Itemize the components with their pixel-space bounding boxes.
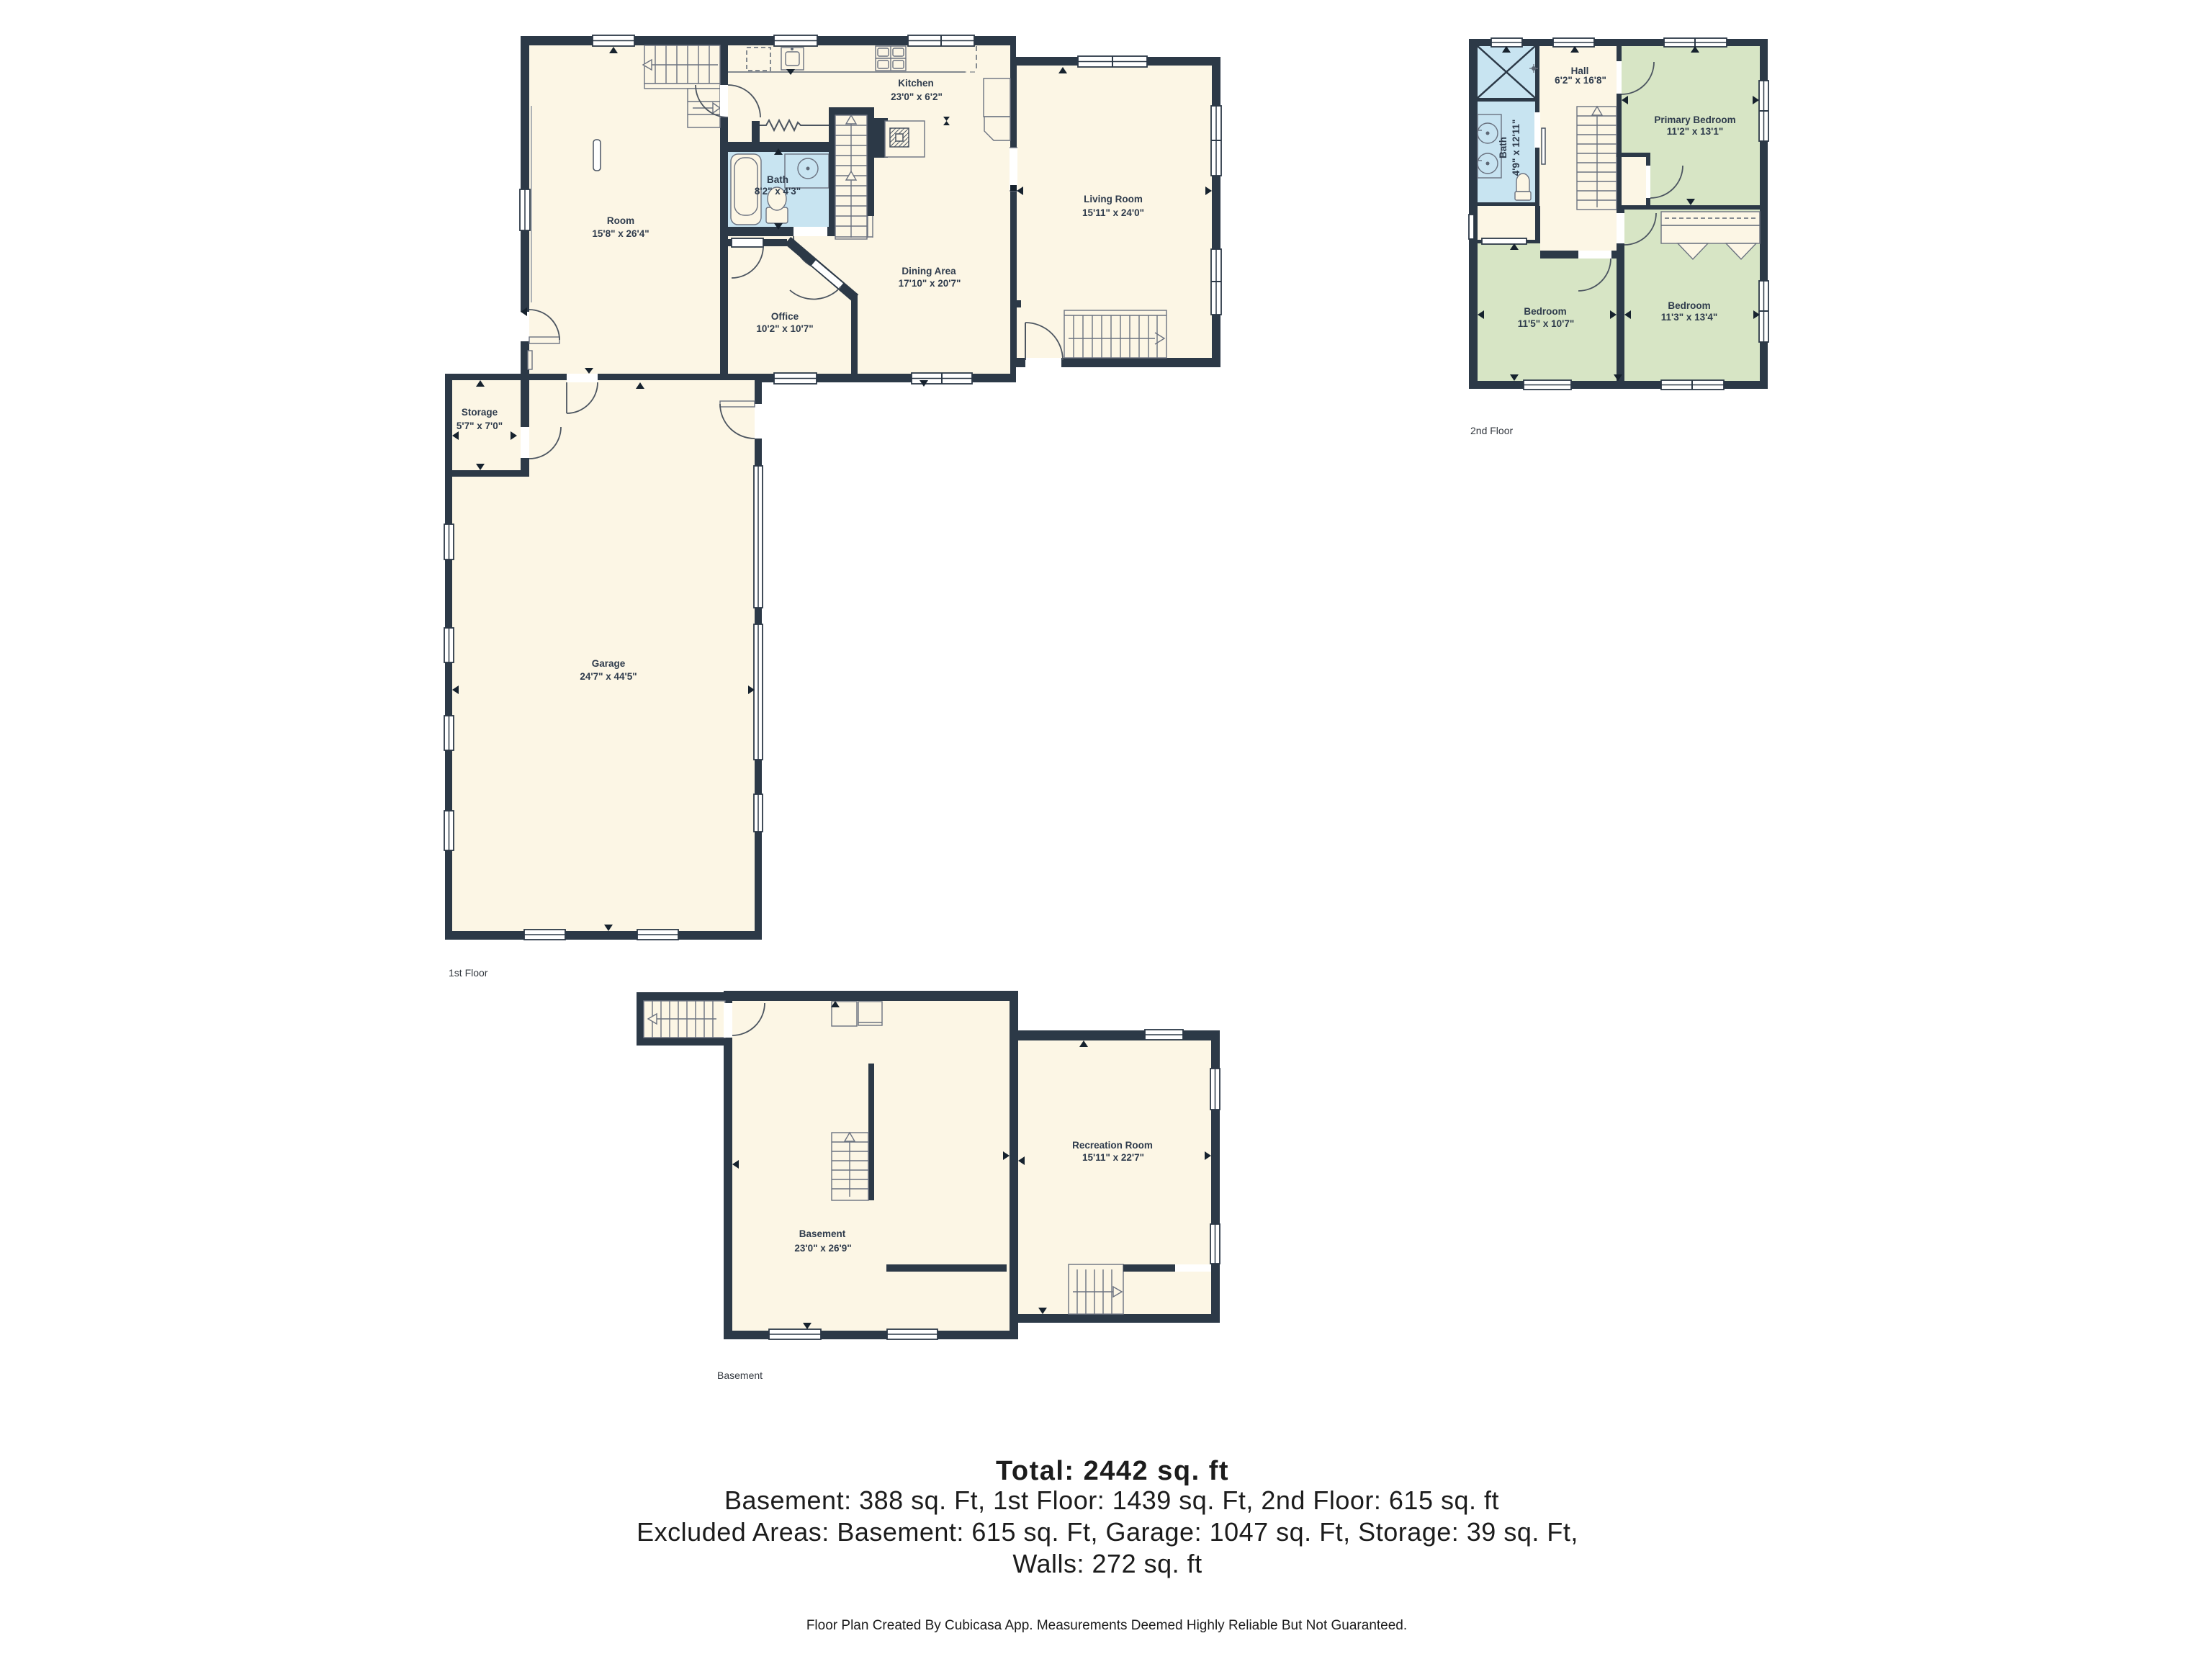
svg-text:Basement: Basement — [799, 1228, 846, 1239]
svg-text:11'2" x 13'1": 11'2" x 13'1" — [1667, 126, 1724, 137]
svg-text:Storage: Storage — [462, 407, 498, 418]
svg-text:Bedroom: Bedroom — [1524, 306, 1566, 317]
svg-text:11'3" x 13'4": 11'3" x 13'4" — [1661, 312, 1718, 323]
svg-text:Bath: Bath — [767, 174, 788, 185]
svg-text:Primary Bedroom: Primary Bedroom — [1654, 114, 1735, 125]
svg-text:23'0" x 26'9": 23'0" x 26'9" — [794, 1243, 851, 1254]
svg-text:Kitchen: Kitchen — [898, 78, 934, 89]
svg-text:24'7" x 44'5": 24'7" x 44'5" — [580, 671, 637, 682]
svg-text:15'11" x 22'7": 15'11" x 22'7" — [1082, 1152, 1144, 1163]
svg-text:23'0" x 6'2": 23'0" x 6'2" — [891, 91, 943, 102]
svg-text:15'11" x 24'0": 15'11" x 24'0" — [1082, 207, 1144, 218]
svg-text:Office: Office — [771, 311, 799, 322]
svg-text:Excluded Areas: Basement: 615: Excluded Areas: Basement: 615 sq. Ft, Ga… — [637, 1517, 1578, 1547]
svg-text:Walls: 272 sq. ft: Walls: 272 sq. ft — [1012, 1549, 1202, 1578]
svg-text:Garage: Garage — [592, 658, 626, 669]
svg-text:15'8" x 26'4": 15'8" x 26'4" — [592, 228, 649, 239]
svg-text:Bedroom: Bedroom — [1668, 300, 1710, 311]
svg-text:1st Floor: 1st Floor — [449, 967, 488, 979]
svg-text:Room: Room — [607, 215, 634, 226]
svg-text:Basement: Basement — [717, 1370, 763, 1381]
svg-text:2nd Floor: 2nd Floor — [1470, 425, 1513, 436]
svg-text:5'7" x 7'0": 5'7" x 7'0" — [457, 421, 503, 431]
svg-text:6'2" x 16'8": 6'2" x 16'8" — [1555, 75, 1606, 86]
svg-text:Recreation Room: Recreation Room — [1072, 1140, 1153, 1151]
svg-text:Total: 2442 sq. ft: Total: 2442 sq. ft — [996, 1456, 1229, 1486]
svg-text:11'5" x 10'7": 11'5" x 10'7" — [1518, 318, 1575, 329]
svg-text:Basement: 388 sq. Ft, 1st Floo: Basement: 388 sq. Ft, 1st Floor: 1439 sq… — [724, 1485, 1499, 1515]
svg-text:Floor Plan Created By Cubicasa: Floor Plan Created By Cubicasa App. Meas… — [806, 1618, 1407, 1633]
svg-text:17'10" x 20'7": 17'10" x 20'7" — [899, 278, 961, 289]
svg-text:Bath: Bath — [1498, 137, 1509, 158]
svg-text:4'9" x 12'11": 4'9" x 12'11" — [1511, 120, 1521, 176]
svg-text:Dining Area: Dining Area — [902, 266, 956, 276]
svg-text:10'2" x 10'7": 10'2" x 10'7" — [756, 323, 813, 334]
svg-text:8'2" x 4'3": 8'2" x 4'3" — [755, 186, 801, 197]
svg-text:Living Room: Living Room — [1084, 194, 1143, 204]
